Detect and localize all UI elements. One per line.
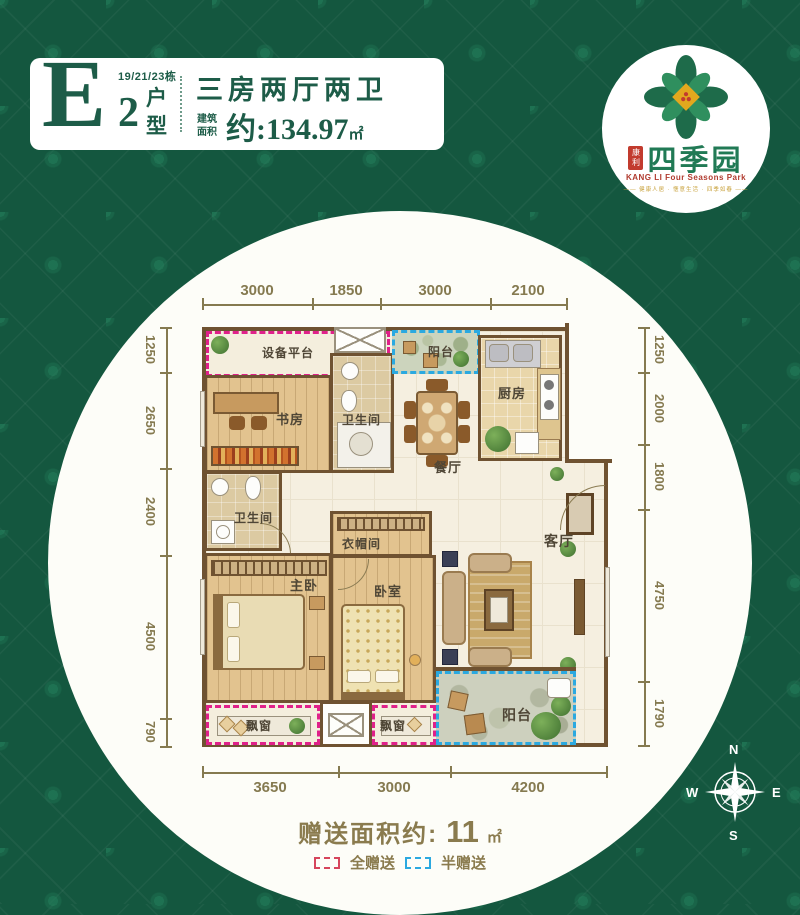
dim-tick bbox=[490, 298, 492, 310]
dim-tick bbox=[312, 298, 314, 310]
dim-tick bbox=[160, 372, 172, 374]
plant-icon bbox=[453, 351, 469, 367]
plant-icon bbox=[289, 718, 305, 734]
dim-label: 2000 bbox=[652, 373, 667, 443]
duct-shaft bbox=[334, 327, 386, 353]
unit-number: 2 bbox=[118, 92, 139, 134]
compass-south-label: S bbox=[729, 828, 738, 843]
tv-cabinet bbox=[574, 579, 585, 635]
dim-label: 1850 bbox=[316, 282, 376, 299]
balcony-sink-icon bbox=[547, 678, 571, 698]
washer-drum-icon bbox=[216, 525, 230, 539]
balcony-table bbox=[447, 690, 468, 711]
window bbox=[200, 579, 205, 655]
window bbox=[200, 391, 205, 447]
legend-half-gift-swatch bbox=[405, 857, 431, 869]
pillow bbox=[227, 636, 240, 662]
nightstand bbox=[309, 596, 325, 610]
room-label-bath2: 卫生间 bbox=[234, 509, 273, 526]
dim-tick bbox=[338, 766, 340, 778]
dim-label: 4500 bbox=[143, 601, 158, 671]
brand-english: KANG LI Four Seasons Park bbox=[602, 173, 770, 182]
dim-tick bbox=[638, 509, 650, 511]
dining-chair bbox=[458, 401, 470, 419]
room-label-study: 书房 bbox=[276, 409, 304, 428]
dim-tick bbox=[160, 718, 172, 720]
room-label-bedroom: 卧室 bbox=[374, 581, 402, 600]
sink-basin-icon bbox=[489, 344, 509, 362]
bookshelf bbox=[211, 446, 299, 466]
room-label-bath1: 卫生间 bbox=[342, 411, 381, 428]
dim-tick bbox=[638, 327, 650, 329]
dim-label: 790 bbox=[143, 697, 158, 767]
dim-tick bbox=[160, 555, 172, 557]
dim-label: 3000 bbox=[227, 282, 287, 299]
dim-line-bottom bbox=[202, 772, 607, 774]
dim-tick bbox=[160, 468, 172, 470]
unit-type-card: E 19/21/23栋 2 户 型 三房两厅两卫 建筑 面积 约:134.97㎡ bbox=[30, 58, 444, 150]
wardrobe bbox=[211, 560, 327, 576]
compass-north-label: N bbox=[729, 742, 738, 757]
pillow bbox=[227, 602, 240, 628]
balcony-stool bbox=[464, 713, 487, 736]
closet-rail bbox=[337, 517, 425, 531]
toilet-icon bbox=[245, 476, 261, 500]
headboard bbox=[213, 594, 223, 670]
legend-full-gift-label: 全赠送 bbox=[350, 852, 395, 873]
area-number: 约:134.97 bbox=[226, 113, 349, 146]
dim-tick bbox=[638, 681, 650, 683]
plant-icon bbox=[551, 696, 571, 716]
nightstand bbox=[309, 656, 325, 670]
room-label-equipment-platform: 设备平台 bbox=[262, 344, 314, 361]
pillow bbox=[347, 670, 371, 683]
toilet-icon bbox=[341, 390, 357, 412]
gift-area-label: 赠送面积约: bbox=[298, 814, 438, 849]
sink-icon bbox=[341, 362, 359, 380]
compass-icon bbox=[690, 744, 780, 840]
dining-table bbox=[416, 391, 458, 455]
dim-tick bbox=[606, 766, 608, 778]
area-prefix-line2: 面积 bbox=[197, 127, 217, 140]
dim-tick bbox=[638, 372, 650, 374]
burner-icon bbox=[544, 380, 554, 390]
room-label-bay-window-right: 飘窗 bbox=[380, 717, 406, 734]
gift-area-value: 11 bbox=[446, 814, 479, 850]
legend-full-gift-swatch bbox=[314, 857, 340, 869]
chair bbox=[229, 416, 245, 430]
sofa-bottom bbox=[468, 647, 512, 667]
dim-tick bbox=[160, 746, 172, 748]
dim-tick bbox=[638, 444, 650, 446]
gift-legend: 全赠送 半赠送 bbox=[0, 852, 800, 873]
dim-tick bbox=[638, 745, 650, 747]
dim-line-left bbox=[166, 327, 168, 747]
gift-area-unit: ㎡ bbox=[487, 826, 502, 847]
headboard bbox=[341, 692, 405, 700]
dining-chair bbox=[458, 425, 470, 443]
dining-chair bbox=[404, 401, 416, 419]
area-prefix-line1: 建筑 bbox=[197, 114, 217, 127]
sink-basin-icon bbox=[513, 344, 533, 362]
side-table bbox=[442, 551, 458, 567]
dining-chair bbox=[404, 425, 416, 443]
dim-tick bbox=[566, 298, 568, 310]
dim-tick bbox=[202, 766, 204, 778]
side-table bbox=[442, 649, 458, 665]
brand-tagline: —— 健康人居 · 惬意生活 · 四季如春 —— bbox=[602, 185, 770, 193]
room-label-bay-window-left: 飘窗 bbox=[246, 717, 272, 734]
sofa-main bbox=[442, 571, 466, 645]
brand-logo: 康利 四季园 KANG LI Four Seasons Park —— 健康人居… bbox=[602, 45, 770, 213]
desk bbox=[213, 392, 279, 414]
plant-icon bbox=[485, 426, 511, 452]
dim-label: 1790 bbox=[652, 678, 667, 748]
compass-east-label: E bbox=[772, 785, 781, 800]
bed-secondary bbox=[341, 604, 405, 700]
duct-shaft bbox=[328, 713, 364, 737]
dim-line-top bbox=[202, 304, 567, 306]
dim-tick bbox=[380, 298, 382, 310]
planter-pot bbox=[403, 341, 416, 354]
dim-label: 1800 bbox=[652, 441, 667, 511]
dim-tick bbox=[450, 766, 452, 778]
brand-seal: 康利 bbox=[628, 146, 643, 170]
unit-char-top: 户 bbox=[146, 82, 167, 112]
coffee-table-top bbox=[490, 597, 508, 623]
sofa-top bbox=[468, 553, 512, 573]
dim-label: 4200 bbox=[498, 779, 558, 796]
room-label-living: 客厅 bbox=[544, 531, 574, 551]
four-leaves-icon bbox=[644, 55, 728, 139]
room-label-balcony-top: 阳台 bbox=[428, 343, 454, 360]
lamp-icon bbox=[409, 654, 421, 666]
plant-icon bbox=[550, 467, 564, 481]
room-label-dining: 餐厅 bbox=[434, 457, 462, 476]
legend-half-gift-label: 半赠送 bbox=[441, 852, 486, 873]
dim-line-right bbox=[644, 327, 646, 746]
dim-label: 3650 bbox=[240, 779, 300, 796]
dim-label: 2650 bbox=[143, 385, 158, 455]
tub-basin-icon bbox=[349, 432, 373, 456]
compass-west-label: W bbox=[686, 785, 698, 800]
room-study bbox=[204, 375, 332, 473]
window bbox=[605, 567, 610, 657]
sink-icon bbox=[211, 478, 229, 496]
unit-char-bottom: 型 bbox=[146, 110, 167, 140]
dim-label: 1250 bbox=[143, 314, 158, 384]
dim-label: 3000 bbox=[405, 282, 465, 299]
unit-letter: E bbox=[42, 46, 106, 142]
plant-icon bbox=[211, 336, 229, 354]
burner-icon bbox=[544, 400, 554, 410]
chair bbox=[251, 416, 267, 430]
compass-rose: N E S W bbox=[690, 744, 780, 840]
dim-label: 2100 bbox=[498, 282, 558, 299]
area-prefix: 建筑 面积 bbox=[197, 114, 217, 139]
area-unit: ㎡ bbox=[349, 127, 364, 143]
dim-label: 3000 bbox=[364, 779, 424, 796]
building-inset bbox=[565, 323, 612, 463]
layout-title: 三房两厅两卫 bbox=[196, 68, 388, 107]
gift-area-line: 赠送面积约: 11 ㎡ bbox=[0, 814, 800, 850]
pillow bbox=[375, 670, 399, 683]
floorplan: 设备平台 书房 卫生间 阳台 厨房 bbox=[202, 327, 608, 747]
room-label-closet: 衣帽间 bbox=[342, 535, 381, 552]
dim-label: 4750 bbox=[652, 560, 667, 630]
dim-label: 2400 bbox=[143, 476, 158, 546]
divider bbox=[180, 76, 182, 132]
room-label-master-bedroom: 主卧 bbox=[290, 575, 318, 594]
room-label-balcony-bottom: 阳台 bbox=[502, 705, 532, 725]
dim-tick bbox=[202, 298, 204, 310]
plant-icon bbox=[531, 712, 561, 740]
area-value: 约:134.97㎡ bbox=[226, 104, 364, 148]
room-label-kitchen: 厨房 bbox=[498, 383, 526, 402]
dining-chair bbox=[426, 379, 448, 391]
dim-tick bbox=[160, 327, 172, 329]
fridge-icon bbox=[515, 432, 539, 454]
